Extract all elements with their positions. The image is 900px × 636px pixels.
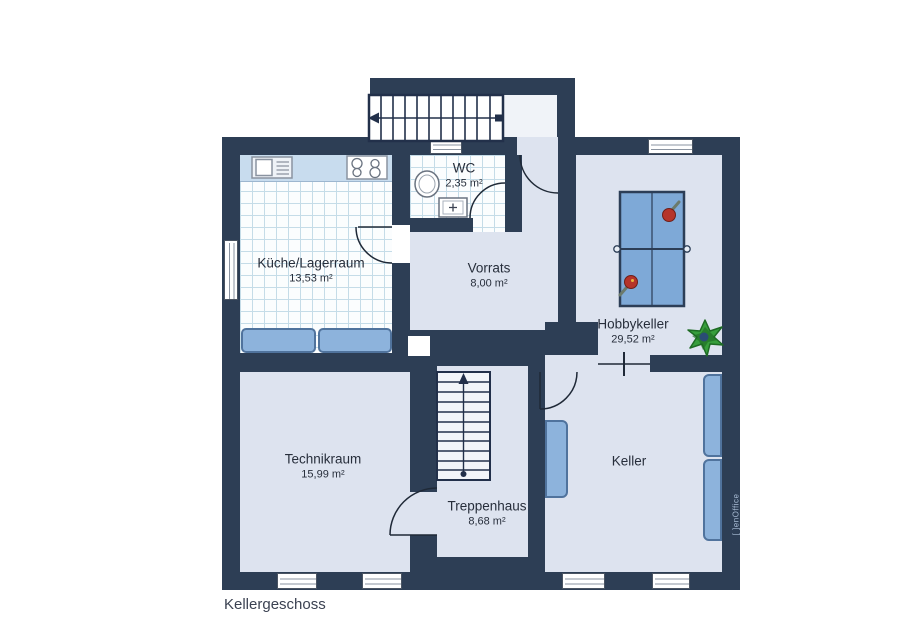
keller-shelf-right-lower: [703, 459, 722, 541]
window-keller-bottom-2: [652, 573, 690, 589]
room-name: Hobbykeller: [597, 317, 668, 334]
room-area: 13,53 m²: [257, 273, 364, 287]
window-glass-lines: [278, 574, 318, 590]
watermark: [ ]enOffice: [732, 485, 741, 545]
window-glass-lines: [225, 241, 239, 301]
window-hobbykeller-top: [648, 139, 693, 154]
room-name: Keller: [612, 454, 647, 471]
kitchen-bench-left: [241, 328, 316, 353]
label-technikraum: Technikraum 15,99 m²: [285, 452, 362, 483]
label-treppenhaus: Treppenhaus 8,68 m²: [447, 499, 526, 530]
floor-stair-landing: [503, 95, 557, 137]
wall-kueche-right-upper: [392, 155, 410, 225]
wall-stair-right: [557, 95, 575, 137]
floor-kueche-tiles: [240, 155, 392, 353]
window-technik-bottom-2: [362, 573, 402, 589]
window-kueche-left: [224, 240, 238, 300]
wall-treppenhaus-keller: [528, 330, 545, 572]
window-glass-lines: [431, 140, 463, 155]
label-keller: Keller: [612, 454, 647, 471]
room-area: 8,68 m²: [447, 516, 526, 530]
keller-shelf-right-upper: [703, 374, 722, 457]
window-technik-bottom-1: [277, 573, 317, 589]
room-area: 29,52 m²: [597, 334, 668, 348]
wall-wc-bottom: [410, 218, 473, 232]
label-vorrats: Vorrats 8,00 m²: [468, 261, 511, 292]
wall-wc-right: [505, 155, 522, 232]
room-name: Treppenhaus: [447, 499, 526, 516]
wall-opening-notch: [408, 336, 430, 356]
wall-hobbykeller-bottom: [650, 355, 722, 372]
wall-treppenhaus-bottom: [437, 557, 528, 572]
kitchen-bench-right: [318, 328, 392, 353]
window-glass-lines: [563, 574, 606, 590]
room-name: Küche/Lagerraum: [257, 256, 364, 273]
floorplan: Küche/Lagerraum 13,53 m² WC 2,35 m² Vorr…: [0, 0, 900, 636]
room-area: 15,99 m²: [285, 469, 362, 483]
window-glass-lines: [653, 574, 691, 590]
wall-top-left: [222, 137, 517, 155]
room-name: WC: [445, 161, 482, 178]
wall-technik-right-lower: [410, 535, 437, 572]
kitchen-counter: [240, 155, 392, 182]
wall-technik-right-upper: [410, 372, 437, 492]
label-wc: WC 2,35 m²: [445, 161, 482, 192]
wall-hobbykeller-left: [558, 155, 576, 330]
wall-stair-top: [370, 78, 575, 95]
page-title: Kellergeschoss: [224, 596, 326, 613]
label-hobbykeller: Hobbykeller 29,52 m²: [597, 317, 668, 348]
window-glass-lines: [649, 140, 694, 155]
window-wc-top: [430, 139, 462, 154]
room-area: 2,35 m²: [445, 178, 482, 192]
keller-shelf-left: [545, 420, 568, 498]
wall-left: [222, 137, 240, 590]
exterior-stairs-icon: [368, 95, 503, 141]
room-area: 8,00 m²: [468, 278, 511, 292]
floor-entry-strip: [517, 137, 558, 155]
label-kueche: Küche/Lagerraum 13,53 m²: [257, 256, 364, 287]
room-name: Technikraum: [285, 452, 362, 469]
window-keller-bottom-1: [562, 573, 605, 589]
window-glass-lines: [363, 574, 403, 590]
room-name: Vorrats: [468, 261, 511, 278]
